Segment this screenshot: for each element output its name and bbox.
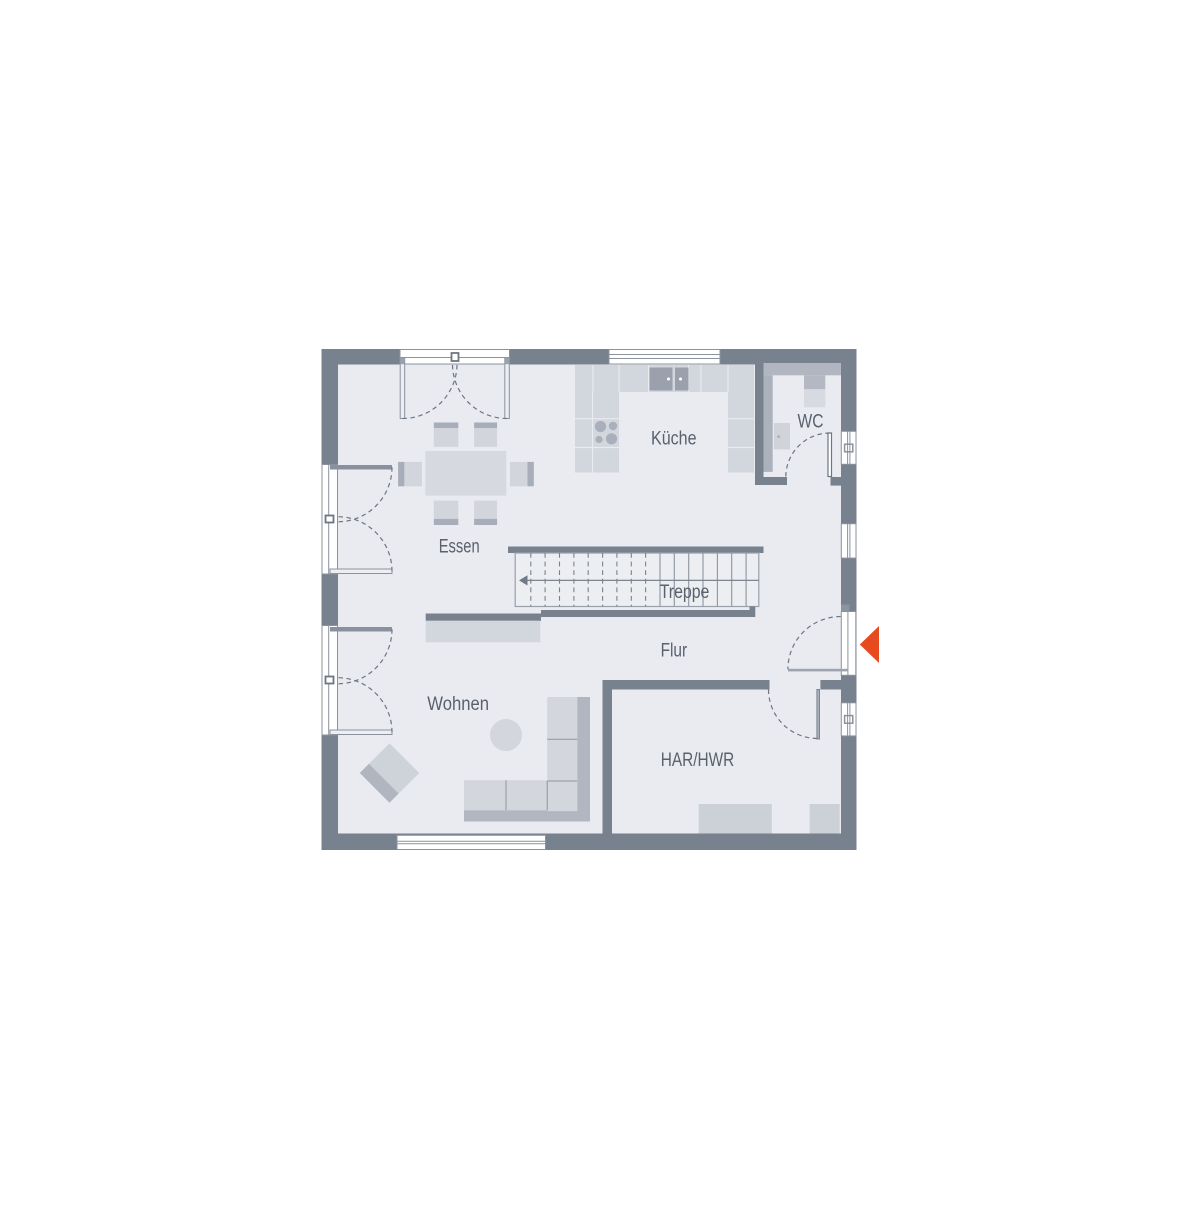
svg-text:Treppe: Treppe bbox=[660, 581, 710, 603]
svg-text:Wohnen: Wohnen bbox=[427, 693, 489, 715]
svg-text:Flur: Flur bbox=[661, 640, 688, 662]
svg-text:WC: WC bbox=[798, 411, 824, 433]
svg-text:HAR/HWR: HAR/HWR bbox=[661, 749, 735, 771]
svg-text:Küche: Küche bbox=[651, 427, 697, 449]
svg-text:Essen: Essen bbox=[439, 536, 480, 558]
